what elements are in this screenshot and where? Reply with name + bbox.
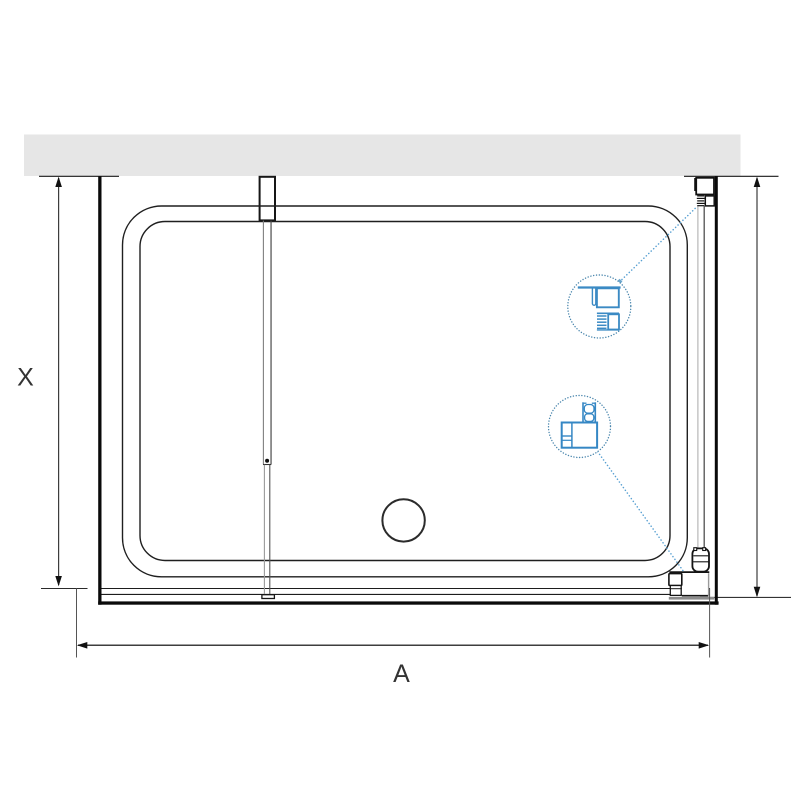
svg-text:X: X: [17, 364, 34, 392]
svg-text:A: A: [393, 660, 410, 688]
